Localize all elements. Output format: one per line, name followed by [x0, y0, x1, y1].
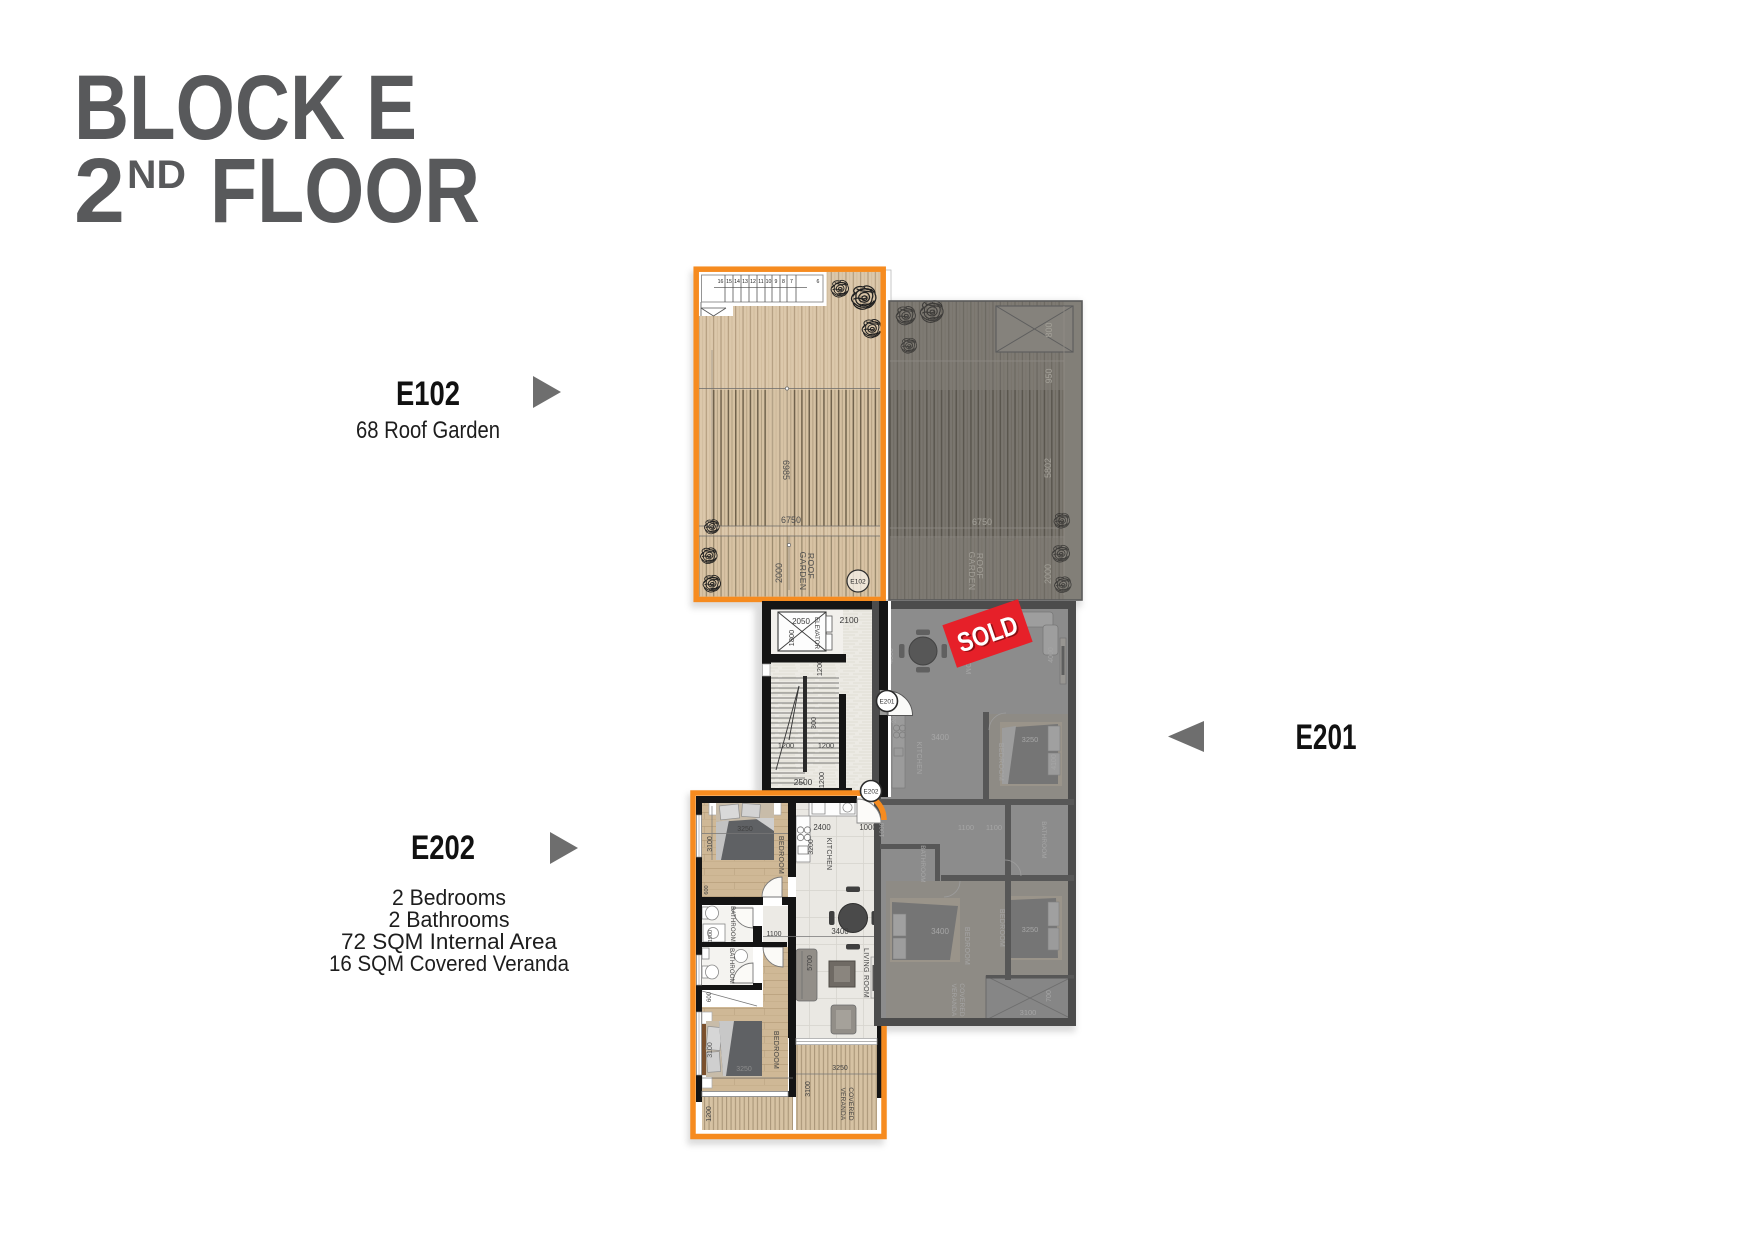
- svg-text:1200: 1200: [778, 741, 794, 750]
- svg-text:16: 16: [718, 279, 724, 285]
- svg-text:E102: E102: [396, 375, 460, 413]
- svg-text:10: 10: [766, 279, 772, 285]
- svg-text:E202: E202: [864, 789, 879, 796]
- svg-text:VERANDA: VERANDA: [839, 1088, 846, 1121]
- svg-text:11: 11: [758, 279, 763, 285]
- svg-text:E201: E201: [880, 699, 895, 706]
- svg-text:800: 800: [1044, 322, 1054, 337]
- svg-text:3100: 3100: [707, 1042, 714, 1058]
- svg-text:COVERED: COVERED: [847, 1087, 854, 1121]
- svg-text:16 SQM Covered Veranda: 16 SQM Covered Veranda: [329, 951, 570, 976]
- svg-text:1800: 1800: [787, 630, 796, 647]
- svg-text:1900: 1900: [708, 930, 714, 942]
- svg-text:6750: 6750: [781, 515, 801, 525]
- svg-text:3100: 3100: [707, 836, 714, 852]
- svg-text:3250: 3250: [1022, 925, 1039, 934]
- svg-text:ND: ND: [127, 153, 186, 197]
- svg-text:BATHROOM: BATHROOM: [728, 948, 734, 984]
- svg-text:600: 600: [704, 885, 710, 894]
- svg-text:2000: 2000: [774, 563, 784, 583]
- svg-text:2050: 2050: [792, 617, 810, 626]
- svg-text:950: 950: [1044, 368, 1054, 383]
- svg-text:4000: 4000: [1048, 647, 1055, 663]
- svg-text:600: 600: [707, 991, 713, 1002]
- svg-text:BEDROOM: BEDROOM: [963, 927, 970, 965]
- svg-text:BATHROOM: BATHROOM: [1040, 821, 1047, 859]
- svg-text:6750: 6750: [972, 517, 992, 527]
- svg-text:5802: 5802: [1043, 458, 1053, 478]
- svg-text:700: 700: [1046, 990, 1053, 1002]
- svg-text:68 Roof Garden: 68 Roof Garden: [356, 417, 500, 444]
- svg-text:3400: 3400: [831, 927, 849, 936]
- svg-text:ELEVATOR: ELEVATOR: [813, 617, 820, 650]
- svg-text:9: 9: [775, 279, 778, 285]
- svg-text:BEDROOM: BEDROOM: [777, 836, 784, 874]
- svg-text:3250: 3250: [832, 1065, 848, 1072]
- svg-text:3400: 3400: [931, 927, 949, 936]
- svg-text:GARDEN: GARDEN: [967, 552, 977, 591]
- svg-text:VERANDA: VERANDA: [950, 984, 957, 1017]
- svg-text:BATHROOM: BATHROOM: [729, 906, 735, 942]
- svg-text:3200: 3200: [808, 839, 815, 855]
- svg-text:1200: 1200: [818, 741, 834, 750]
- svg-text:4100: 4100: [1051, 754, 1058, 770]
- svg-text:2000: 2000: [1043, 564, 1053, 584]
- svg-text:8: 8: [782, 279, 785, 285]
- svg-text:KITCHEN: KITCHEN: [825, 838, 832, 871]
- svg-text:1100: 1100: [766, 931, 781, 938]
- svg-text:E202: E202: [411, 829, 475, 867]
- svg-text:15: 15: [726, 279, 732, 285]
- svg-text:3250: 3250: [1022, 735, 1039, 744]
- svg-text:COVERED: COVERED: [958, 983, 965, 1017]
- svg-text:14: 14: [734, 279, 740, 285]
- svg-text:E102: E102: [850, 579, 866, 586]
- svg-text:5700: 5700: [807, 955, 814, 971]
- svg-text:BEDROOM: BEDROOM: [997, 743, 1004, 781]
- svg-text:BATHROOM: BATHROOM: [919, 845, 926, 883]
- svg-text:2400: 2400: [813, 823, 831, 832]
- svg-text:2100: 2100: [840, 615, 859, 625]
- svg-text:12: 12: [750, 279, 756, 285]
- svg-text:13: 13: [742, 279, 748, 285]
- svg-text:3250: 3250: [737, 826, 753, 833]
- svg-text:1100: 1100: [986, 823, 1002, 832]
- svg-text:2: 2: [74, 140, 125, 242]
- svg-text:3400: 3400: [931, 733, 949, 742]
- svg-text:BEDROOM: BEDROOM: [998, 909, 1005, 947]
- svg-text:6: 6: [817, 279, 820, 285]
- svg-text:KITCHEN: KITCHEN: [915, 742, 922, 775]
- svg-text:6985: 6985: [781, 460, 791, 480]
- svg-text:1000: 1000: [879, 822, 886, 837]
- svg-text:LIVING ROOM: LIVING ROOM: [862, 948, 869, 998]
- svg-text:1100: 1100: [958, 823, 974, 832]
- svg-text:3100: 3100: [805, 1081, 812, 1097]
- svg-text:1200: 1200: [817, 772, 826, 788]
- svg-text:3100: 3100: [1020, 1008, 1037, 1017]
- svg-text:2500: 2500: [794, 777, 813, 787]
- svg-text:GARDEN: GARDEN: [798, 552, 808, 591]
- svg-text:300: 300: [809, 717, 818, 729]
- svg-text:BEDROOM: BEDROOM: [772, 1031, 779, 1069]
- svg-text:1200: 1200: [706, 1106, 713, 1122]
- svg-text:3250: 3250: [736, 1066, 752, 1073]
- svg-text:FLOOR: FLOOR: [210, 140, 480, 242]
- svg-text:7: 7: [790, 279, 793, 285]
- svg-text:E201: E201: [1296, 718, 1357, 757]
